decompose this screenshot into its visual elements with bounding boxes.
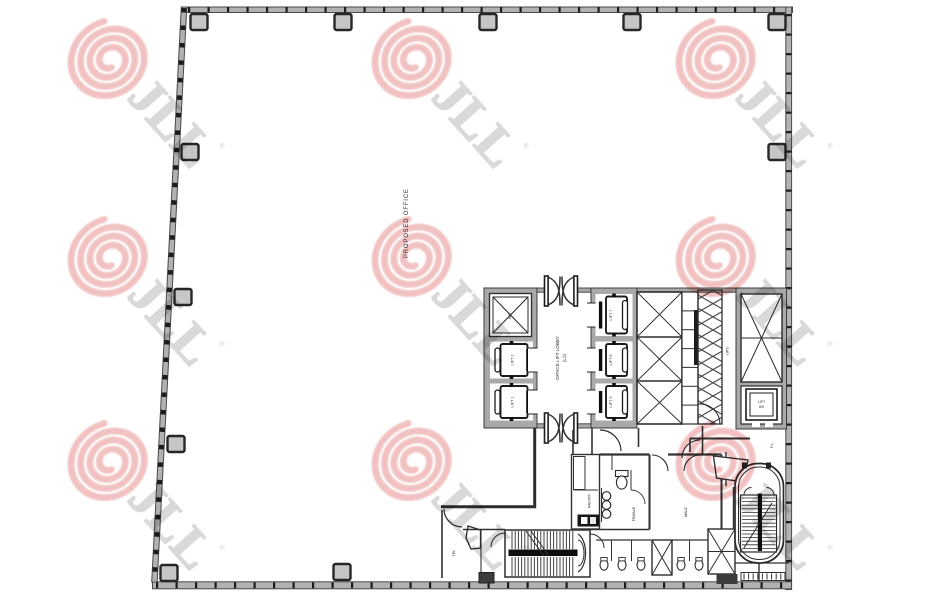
svg-text:FEMALE: FEMALE — [632, 506, 636, 521]
svg-text:OFFICE LIFT LOBBY: OFFICE LIFT LOBBY — [555, 336, 560, 380]
svg-text:LIFT 2: LIFT 2 — [511, 355, 515, 366]
svg-text:LIFT 1: LIFT 1 — [511, 397, 515, 408]
svg-text:TEL: TEL — [452, 550, 456, 557]
svg-text:(L2): (L2) — [562, 353, 567, 362]
svg-text:MALE: MALE — [684, 507, 688, 517]
svg-text:PANTRY: PANTRY — [588, 493, 592, 508]
svg-text:LIFT: LIFT — [758, 400, 766, 404]
svg-text:LIFT 7: LIFT 7 — [609, 310, 613, 321]
svg-text:LIFT 5: LIFT 5 — [609, 397, 613, 408]
svg-text:UPS: UPS — [726, 347, 730, 355]
svg-text:F.L.: F.L. — [770, 442, 774, 448]
svg-text:8/9: 8/9 — [759, 405, 764, 409]
svg-text:LIFT 6: LIFT 6 — [609, 355, 613, 366]
